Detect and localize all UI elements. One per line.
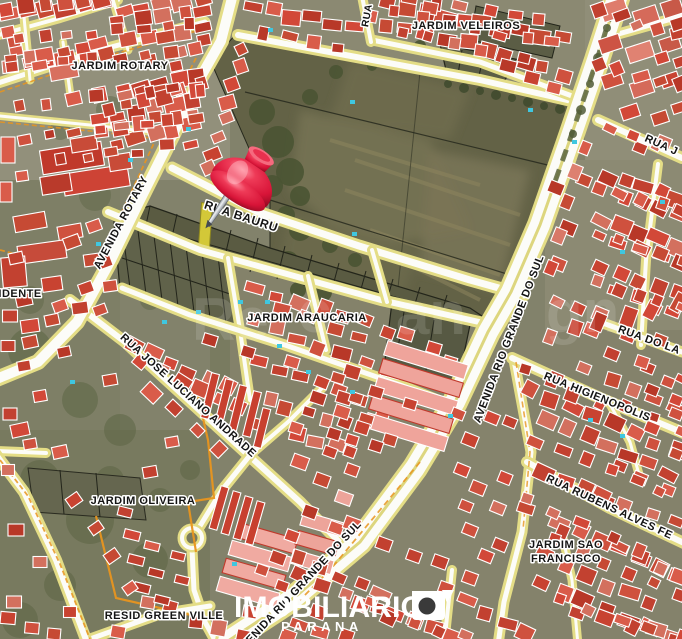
- svg-text:FRANCISCO: FRANCISCO: [531, 553, 601, 565]
- svg-text:an: an: [396, 280, 466, 347]
- svg-text:PARANA: PARANA: [281, 619, 363, 634]
- svg-text:RESID GREEN VILLE: RESID GREEN VILLE: [105, 610, 224, 622]
- svg-text:JARDIM ROTARY: JARDIM ROTARY: [72, 60, 169, 72]
- svg-text:JARDIM ARAUCARIA: JARDIM ARAUCARIA: [247, 312, 366, 324]
- svg-text:JARDIM VELEIROS: JARDIM VELEIROS: [412, 20, 520, 32]
- svg-text:JARDIM OLIVEIRA: JARDIM OLIVEIRA: [91, 495, 196, 507]
- svg-text:JARDIM SAO: JARDIM SAO: [529, 539, 603, 551]
- svg-text:RESIDENTE: RESIDENTE: [0, 288, 42, 300]
- svg-text:gn: gn: [546, 278, 619, 345]
